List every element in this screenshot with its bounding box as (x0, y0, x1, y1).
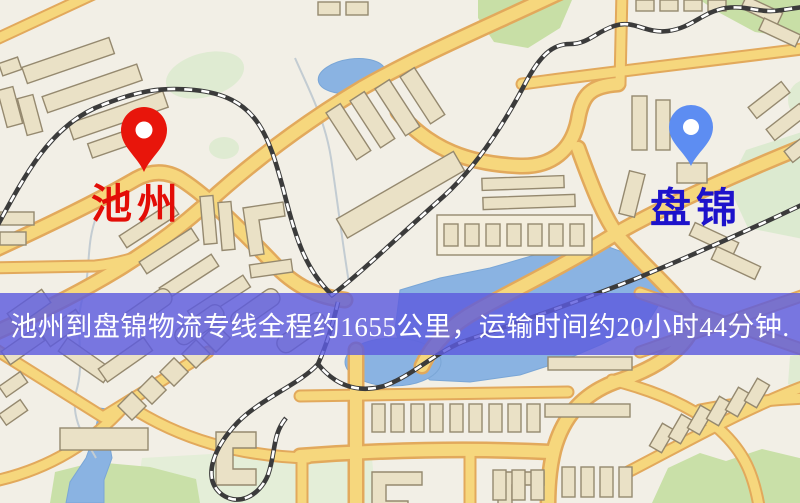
origin-pin-icon (121, 107, 167, 172)
map-image: 池州 盘锦 池州到盘锦物流专线全程约1655公里，运输时间约20小时44分钟. (0, 0, 800, 503)
basemap-svg: 池州 盘锦 (0, 0, 800, 503)
route-info-text: 池州到盘锦物流专线全程约1655公里，运输时间约20小时44分钟. (10, 305, 789, 344)
route-info-banner: 池州到盘锦物流专线全程约1655公里，运输时间约20小时44分钟. (0, 293, 800, 355)
destination-city-label: 盘锦 (650, 185, 742, 231)
destination-pin-icon (669, 105, 713, 166)
origin-city-label: 池州 (91, 181, 183, 227)
destination-pin (669, 105, 713, 166)
origin-pin (121, 107, 167, 172)
